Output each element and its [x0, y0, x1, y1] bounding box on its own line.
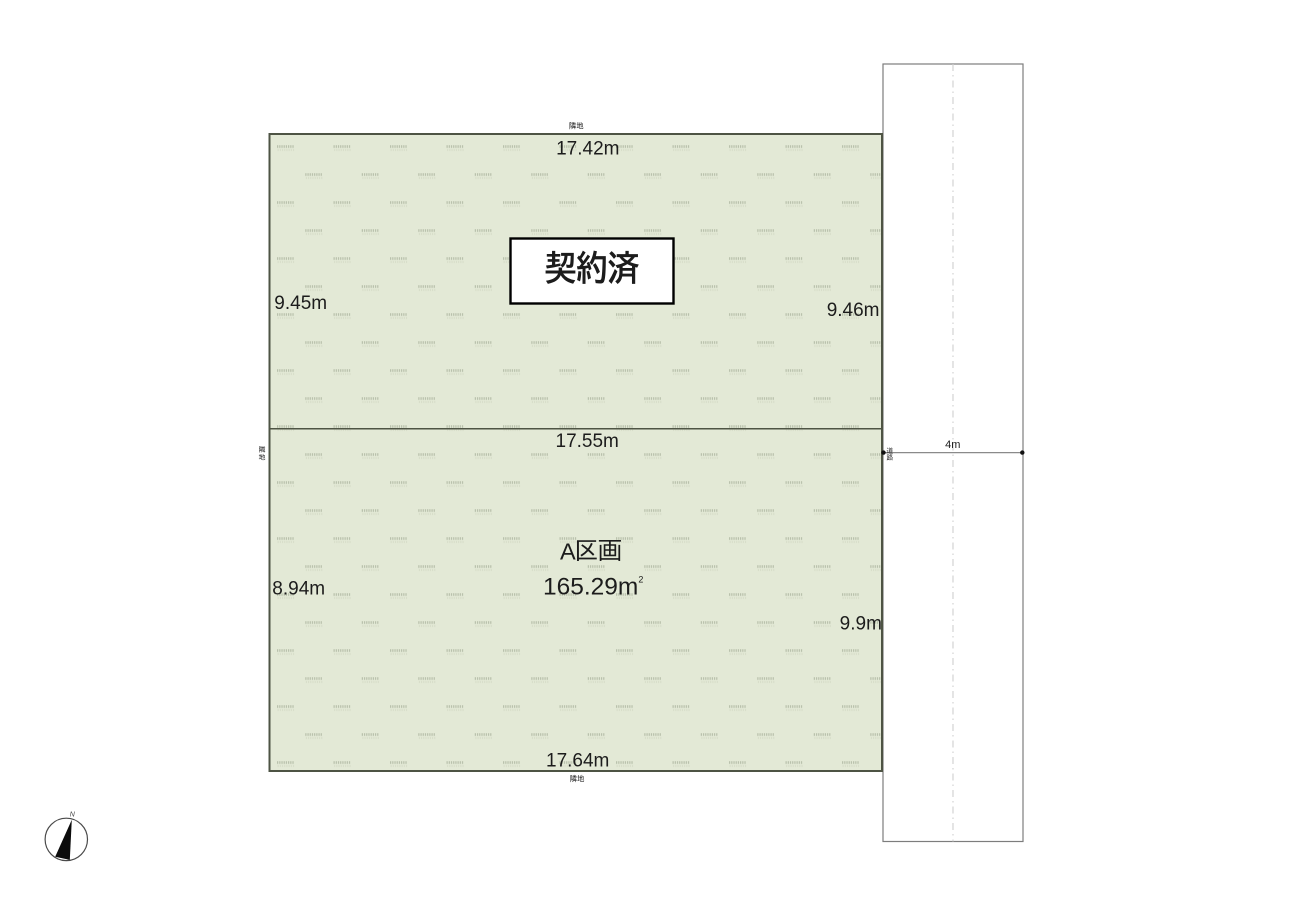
- svg-text:9.46m: 9.46m: [827, 300, 880, 321]
- svg-text:17.64m: 17.64m: [546, 751, 609, 772]
- svg-text:N: N: [70, 812, 76, 819]
- svg-text:4m: 4m: [945, 439, 960, 451]
- svg-text:17.55m: 17.55m: [556, 431, 619, 452]
- svg-text:9.45m: 9.45m: [274, 293, 327, 314]
- svg-text:17.42m: 17.42m: [556, 139, 619, 160]
- svg-text:8.94m: 8.94m: [272, 579, 325, 600]
- svg-text:9.9m: 9.9m: [840, 614, 882, 635]
- svg-text:165.29m2: 165.29m2: [543, 573, 643, 600]
- svg-text:A: A: [560, 538, 576, 564]
